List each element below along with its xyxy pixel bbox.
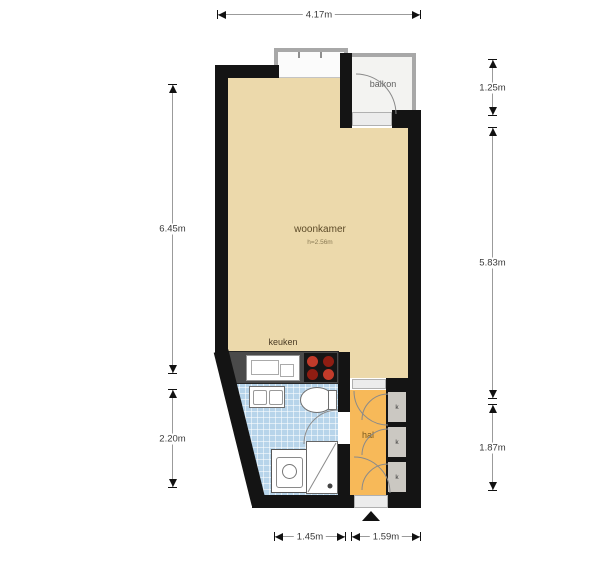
arrow-left-icon	[218, 11, 226, 19]
dim-label: 6.45m	[156, 224, 188, 235]
dim-label: 1.45m	[294, 531, 326, 542]
closet: k	[388, 392, 406, 422]
hal-label: hal	[350, 430, 386, 440]
dim-left-lower: 2.20m	[172, 390, 173, 487]
dim-label: 2.20m	[156, 433, 188, 444]
washing-machine-icon	[271, 449, 307, 493]
woonkamer-room-right	[342, 128, 410, 378]
wall-bath-hal-lower	[338, 444, 350, 495]
window-mullion	[320, 52, 322, 58]
wall-left	[215, 65, 228, 357]
burner-icon	[307, 369, 318, 380]
dim-left-upper: 6.45m	[172, 85, 173, 373]
room-height-note: h=2.56m	[268, 239, 372, 246]
shower-icon	[306, 441, 338, 494]
arrow-right-icon	[412, 11, 420, 19]
arrow-up-icon	[489, 60, 497, 68]
dim-label: 1.87m	[476, 442, 508, 453]
bay-window	[274, 48, 348, 78]
arrow-right-icon	[412, 533, 420, 541]
arrow-down-icon	[169, 365, 177, 373]
arrow-up-icon	[169, 390, 177, 398]
wall-balcony-left	[340, 53, 352, 128]
arrow-left-icon	[352, 533, 360, 541]
arrow-down-icon	[489, 107, 497, 115]
woonkamer-label-block: woonkamer h=2.56m	[268, 224, 372, 246]
keuken-label: keuken	[245, 337, 321, 347]
woonkamer-room	[228, 78, 342, 352]
basin-right	[269, 390, 283, 405]
arrow-up-icon	[169, 85, 177, 93]
closet-label: k	[395, 404, 398, 411]
balkon-label: balkon	[354, 79, 412, 89]
sink-basin	[251, 360, 279, 375]
dim-right-lower: 1.87m	[492, 405, 493, 490]
dim-label: 5.83m	[476, 258, 508, 269]
dim-label: 1.59m	[370, 531, 402, 542]
arrow-up-icon	[489, 128, 497, 136]
dim-right-main: 5.83m	[492, 128, 493, 398]
stove-icon	[304, 353, 337, 382]
dim-bottom-left: 1.45m	[275, 536, 345, 537]
dim-label: 1.25m	[476, 82, 508, 93]
burner-icon	[307, 356, 318, 367]
entrance-doorway	[354, 495, 388, 508]
arrow-down-icon	[489, 390, 497, 398]
entrance-arrow-icon	[362, 511, 380, 521]
closet-label: k	[395, 439, 398, 446]
closet: k	[388, 427, 406, 457]
balcony-doorway	[352, 112, 392, 126]
burner-icon	[323, 356, 334, 367]
kitchen-sink-icon	[246, 355, 300, 381]
dim-label: 4.17m	[303, 9, 335, 20]
closet: k	[388, 462, 406, 492]
dim-right-balcony: 1.25m	[492, 60, 493, 115]
window-mullion	[298, 52, 300, 58]
hal-room	[350, 390, 386, 495]
sink-basin	[280, 364, 294, 377]
hal-doorway	[352, 379, 386, 389]
wm-drum	[282, 464, 297, 479]
toilet-tank	[328, 390, 337, 410]
wall-top-left	[215, 65, 279, 78]
wall-bath-hal-upper	[338, 352, 350, 412]
arrow-left-icon	[275, 533, 283, 541]
wall-bottom	[252, 495, 421, 508]
woonkamer-label: woonkamer	[268, 224, 372, 235]
dim-bottom-right: 1.59m	[352, 536, 420, 537]
arrow-down-icon	[489, 482, 497, 490]
burner-icon	[323, 369, 334, 380]
floorplan-canvas: k k k woonkamer h=2.56m balkon keuken ha…	[0, 0, 612, 563]
closet-label: k	[395, 474, 398, 481]
dim-top: 4.17m	[218, 14, 420, 15]
washbasin-icon	[249, 386, 285, 408]
arrow-up-icon	[489, 405, 497, 413]
basin-left	[253, 390, 267, 405]
arrow-right-icon	[337, 533, 345, 541]
arrow-down-icon	[169, 479, 177, 487]
